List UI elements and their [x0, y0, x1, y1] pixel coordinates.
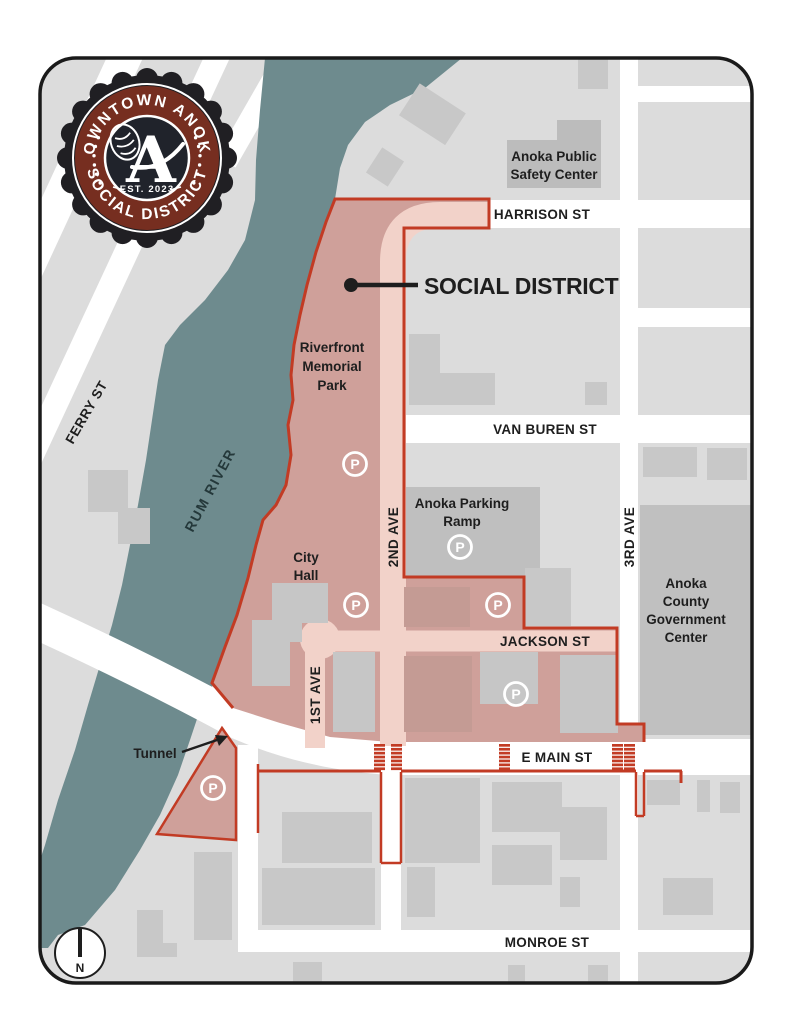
safety-center-label: Anoka Public [511, 149, 597, 164]
building [152, 943, 177, 957]
building [407, 867, 435, 917]
svg-text:County: County [663, 594, 710, 609]
building [293, 962, 322, 983]
building [492, 782, 562, 832]
svg-text:Hall: Hall [294, 568, 319, 583]
building [492, 845, 552, 885]
monroe-street-road [238, 930, 752, 952]
anoka-social-district-map: P P P P P P HARRISON ST VAN BUREN ST JAC… [0, 0, 800, 1035]
monroe-st-label: MONROE ST [505, 935, 590, 950]
building [588, 965, 608, 983]
building [282, 812, 372, 863]
city-hall-building [272, 583, 328, 623]
building [585, 382, 607, 405]
building [560, 655, 618, 733]
building [720, 782, 740, 813]
building [480, 652, 538, 704]
e-main-st-label: E MAIN ST [522, 750, 593, 765]
building [404, 656, 472, 732]
parking-symbol: P [493, 597, 502, 613]
building [405, 778, 480, 863]
building [194, 852, 232, 940]
building [118, 508, 150, 544]
parking-ramp-label: Anoka Parking [415, 496, 510, 511]
parking-symbol: P [351, 597, 360, 613]
second-ave-label: 2ND AVE [386, 507, 401, 568]
compass-north-label: N [76, 961, 85, 975]
building [262, 868, 375, 925]
building [560, 877, 580, 907]
memorial-park-label: Riverfront [300, 340, 365, 355]
building [557, 120, 601, 142]
building [88, 470, 128, 512]
parking-symbol: P [208, 780, 217, 796]
svg-text:Safety Center: Safety Center [510, 167, 598, 182]
social-district-callout-label: SOCIAL DISTRICT [424, 273, 619, 299]
svg-text:Center: Center [665, 630, 709, 645]
van-buren-st-label: VAN BUREN ST [493, 422, 597, 437]
parking-symbol: P [455, 539, 464, 555]
first-ave-label: 1ST AVE [308, 666, 323, 724]
building [525, 568, 571, 626]
third-ave-label: 3RD AVE [622, 507, 637, 568]
city-hall-label: City [293, 550, 319, 565]
building [643, 447, 697, 477]
building [707, 448, 747, 480]
building [404, 587, 470, 627]
tunnel-label: Tunnel [133, 746, 176, 761]
building [409, 334, 440, 405]
logo-est-label: EST. 2023 [120, 184, 175, 195]
city-hall-building [288, 620, 302, 642]
building [663, 878, 713, 915]
parking-symbol: P [350, 456, 359, 472]
north-compass: N [55, 928, 105, 978]
city-hall-building [252, 620, 290, 686]
building [560, 807, 607, 860]
gov-center-label: Anoka [665, 576, 707, 591]
svg-text:Ramp: Ramp [443, 514, 481, 529]
harrison-st-label: HARRISON ST [494, 207, 591, 222]
building [578, 57, 608, 89]
svg-text:Memorial: Memorial [302, 359, 361, 374]
building [333, 652, 375, 732]
svg-text:Park: Park [317, 378, 347, 393]
building [697, 780, 710, 812]
building [440, 373, 495, 405]
jackson-st-label: JACKSON ST [500, 634, 590, 649]
map-page: P P P P P P HARRISON ST VAN BUREN ST JAC… [0, 0, 800, 1035]
building [647, 780, 680, 805]
building [508, 965, 525, 983]
parking-symbol: P [511, 686, 520, 702]
svg-text:Government: Government [646, 612, 726, 627]
